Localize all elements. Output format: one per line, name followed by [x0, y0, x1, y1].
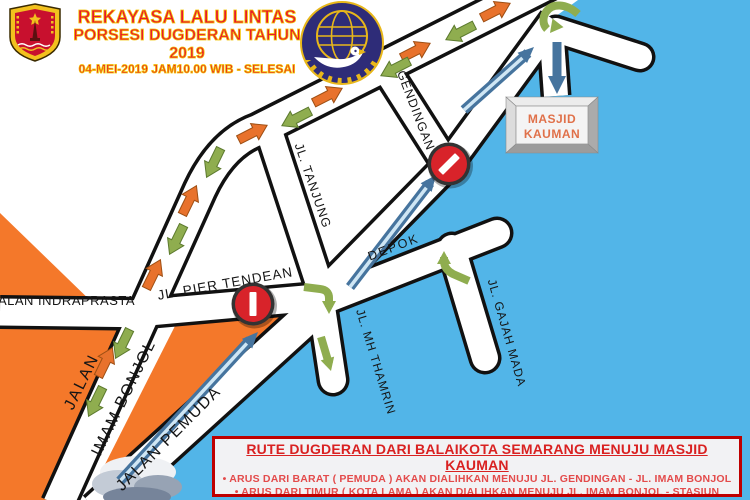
poster-title-line1: REKAYASA LALU LINTAS: [62, 8, 312, 27]
poster-title-line2: PORSESI DUGDERAN TAHUN 2019: [62, 27, 312, 62]
route-info-title: RUTE DUGDERAN DARI BALAIKOTA SEMARANG ME…: [215, 441, 739, 473]
semarang-crest-icon: [10, 4, 60, 61]
route-info-bullet-2: • ARUS DARI TIMUR ( KOTA LAMA ) AKAN DIA…: [215, 486, 739, 498]
kemenhub-logo-icon: [301, 2, 383, 84]
destination-label-line1: MASJID: [528, 112, 576, 126]
title-block: REKAYASA LALU LINTAS PORSESI DUGDERAN TA…: [62, 8, 312, 76]
route-info-bullet-1: • ARUS DARI BARAT ( PEMUDA ) AKAN DIALIH…: [215, 473, 739, 486]
traffic-map-poster: MASJID KAUMAN JALAN INDRAPRASTA JL. PIER…: [0, 0, 750, 500]
route-info-box: RUTE DUGDERAN DARI BALAIKOTA SEMARANG ME…: [212, 436, 742, 497]
destination-box: MASJID KAUMAN: [506, 97, 598, 153]
road-label-indraprasta: JALAN INDRAPRASTA: [0, 293, 135, 308]
poster-title-line3: 04-MEI-2019 JAM10.00 WIB - SELESAI: [62, 63, 312, 76]
destination-label-line2: KAUMAN: [524, 127, 580, 141]
